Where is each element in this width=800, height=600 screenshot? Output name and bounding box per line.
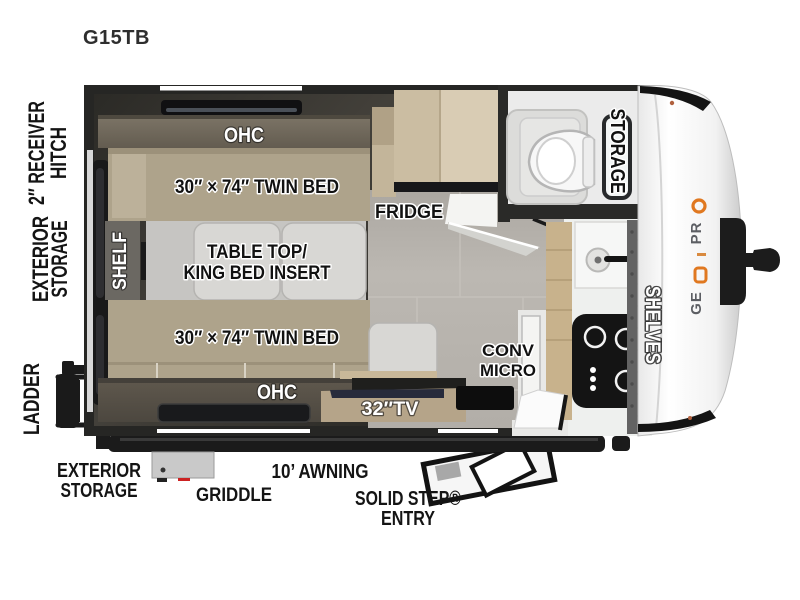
svg-text:GE: GE: [688, 291, 705, 315]
svg-text:SHELF: SHELF: [110, 232, 131, 290]
svg-text:GRIDDLE: GRIDDLE: [196, 485, 272, 506]
svg-text:FRIDGE: FRIDGE: [375, 202, 443, 223]
svg-text:G15TB: G15TB: [83, 27, 150, 49]
svg-text:32″TV: 32″TV: [362, 399, 419, 420]
svg-text:HITCH: HITCH: [46, 127, 71, 179]
svg-text:PR: PR: [688, 222, 705, 245]
svg-text:OHC: OHC: [224, 124, 264, 147]
svg-text:SHELVES: SHELVES: [641, 286, 664, 364]
svg-text:OHC: OHC: [257, 381, 297, 404]
svg-text:MICRO: MICRO: [480, 361, 536, 380]
svg-text:EXTERIOR: EXTERIOR: [57, 460, 141, 482]
svg-text:STORAGE: STORAGE: [61, 480, 138, 502]
svg-text:KING BED INSERT: KING BED INSERT: [184, 263, 331, 284]
svg-text:30″ × 74″ TWIN BED: 30″ × 74″ TWIN BED: [175, 328, 339, 349]
svg-text:CONV: CONV: [482, 341, 535, 360]
svg-text:10’ AWNING: 10’ AWNING: [272, 461, 369, 483]
svg-text:STORAGE: STORAGE: [606, 109, 628, 194]
svg-text:SOLID STEP®: SOLID STEP®: [355, 488, 461, 510]
svg-text:LADDER: LADDER: [19, 363, 44, 435]
svg-text:ENTRY: ENTRY: [381, 508, 436, 530]
svg-text:TABLE TOP/: TABLE TOP/: [207, 242, 308, 263]
svg-text:STORAGE: STORAGE: [47, 221, 72, 298]
svg-text:30″ × 74″ TWIN BED: 30″ × 74″ TWIN BED: [175, 177, 339, 198]
